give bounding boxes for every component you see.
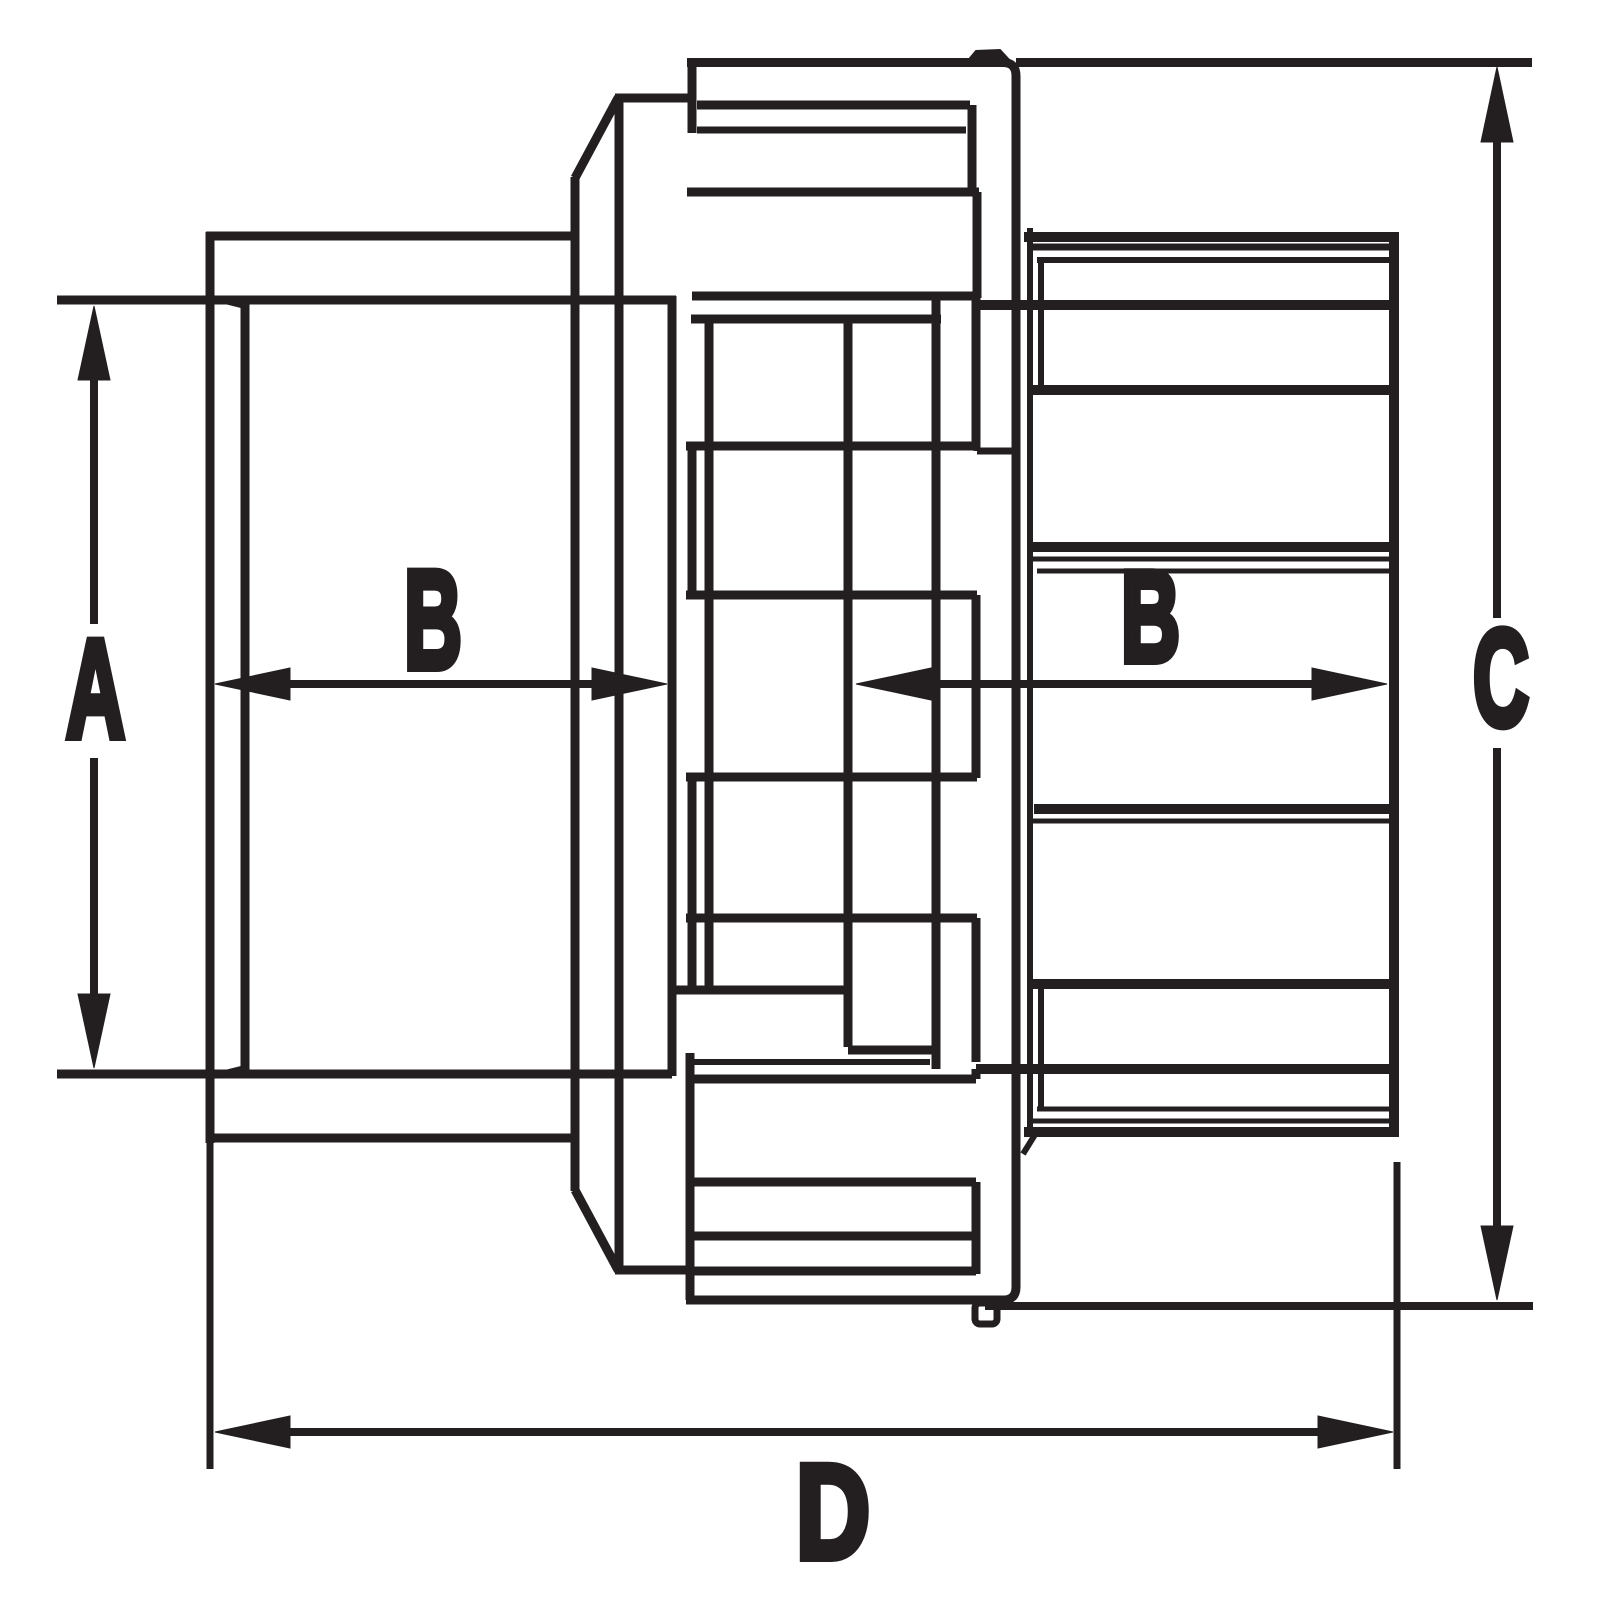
svg-text:B: B bbox=[1121, 545, 1180, 689]
svg-text:B: B bbox=[404, 541, 462, 698]
svg-text:A: A bbox=[66, 610, 125, 767]
svg-text:C: C bbox=[1473, 602, 1529, 755]
svg-text:D: D bbox=[796, 1438, 870, 1587]
